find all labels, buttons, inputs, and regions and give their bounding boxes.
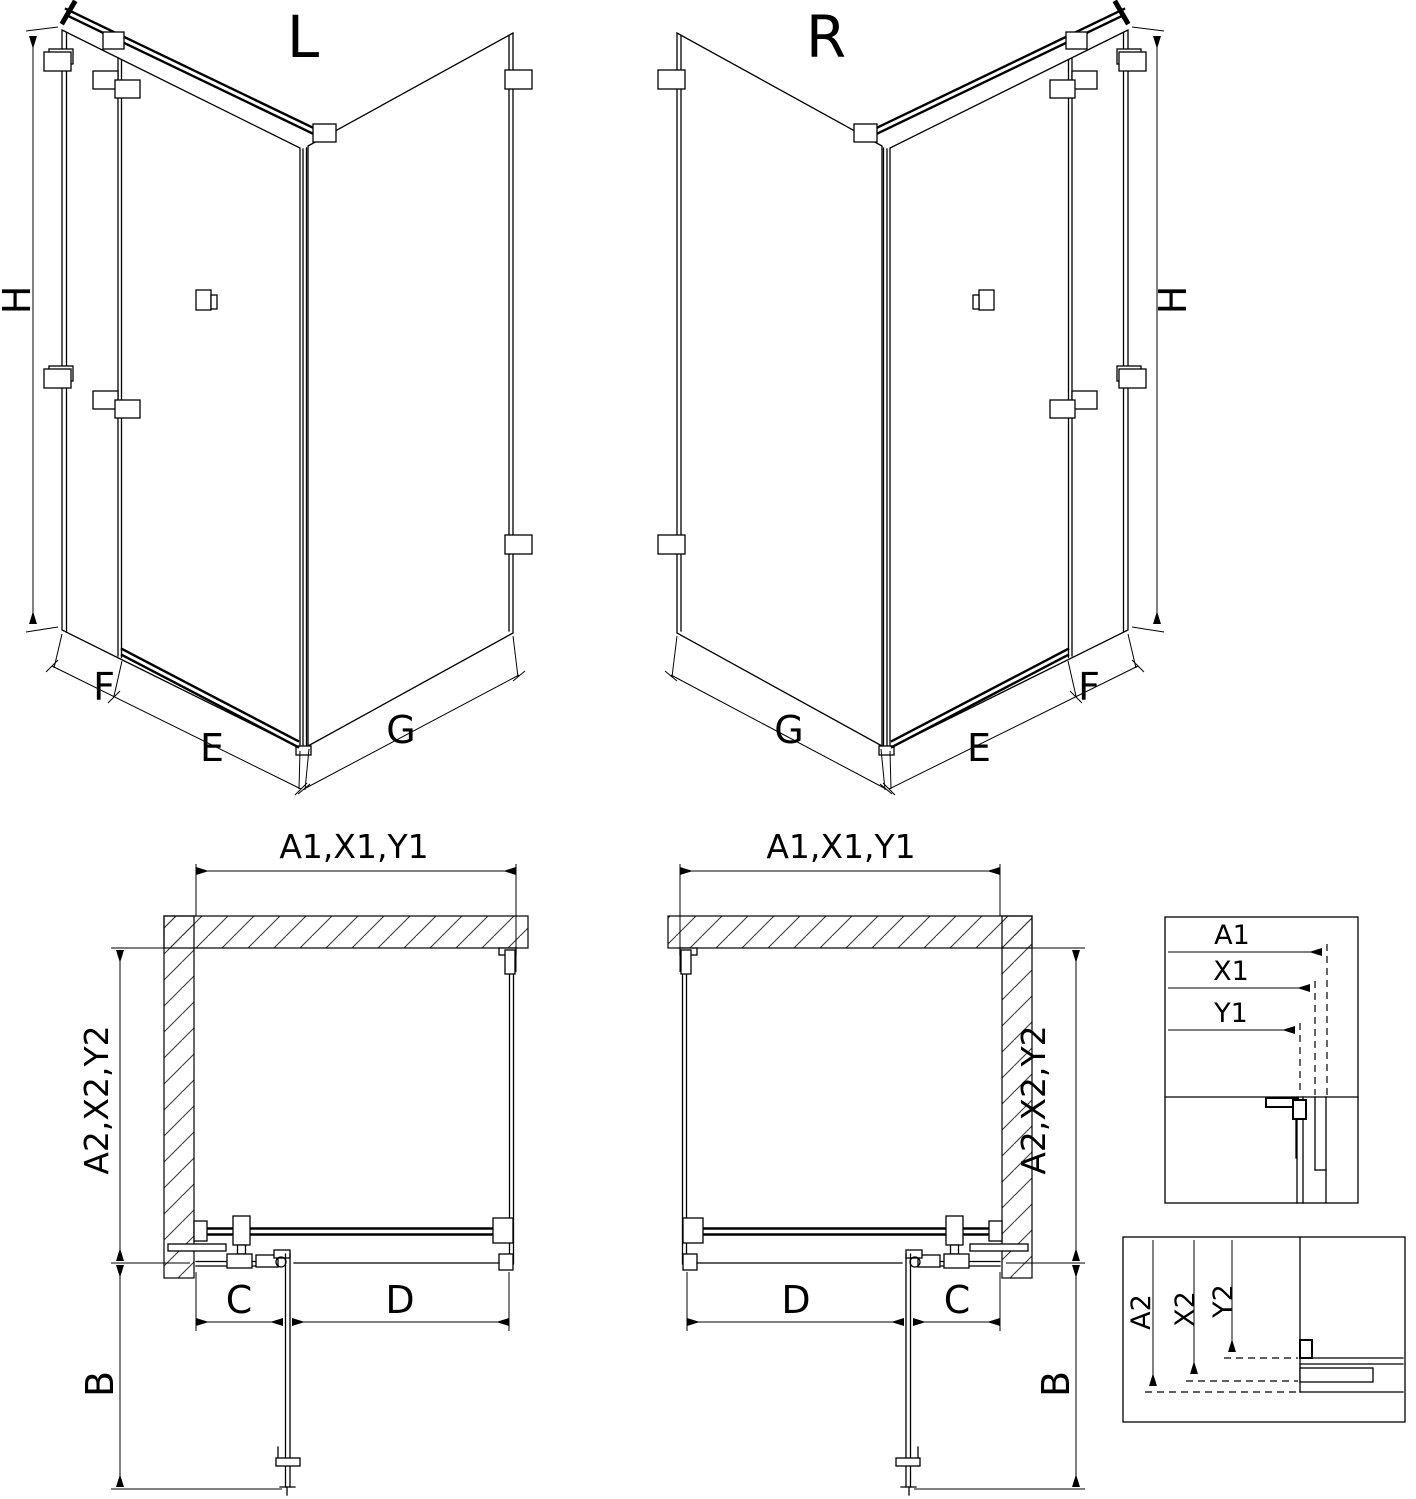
label-fixed-panel-left: F	[93, 665, 115, 709]
label-plan-width-right: A1,X1,Y1	[766, 827, 915, 866]
wall-top-left-plan	[164, 916, 528, 948]
label-height-right: H	[1151, 286, 1195, 315]
label-detail-y2: Y2	[1208, 1284, 1239, 1319]
label-height-left: H	[0, 286, 39, 315]
label-door-d-right: D	[781, 1278, 810, 1322]
label-detail-a1: A1	[1214, 920, 1250, 951]
plan-left-walls	[164, 916, 528, 1278]
label-door-d-left: D	[385, 1278, 414, 1322]
label-view-left: L	[287, 3, 319, 71]
label-door-open-b-left: B	[78, 1371, 122, 1397]
label-side-wall-right: G	[774, 708, 803, 752]
label-side-wall-left: G	[386, 708, 415, 752]
plan-right-walls	[668, 916, 1032, 1278]
label-door-open-b-right: B	[1034, 1371, 1078, 1397]
label-detail-x1: X1	[1213, 956, 1249, 987]
label-detail-a2: A2	[1126, 1294, 1157, 1330]
diagram-canvas: L R H H F E G G E F A1,X1,Y1 A1,X1,Y1 A2…	[0, 0, 1416, 1499]
label-plan-depth-right: A2,X2,Y2	[1014, 1025, 1053, 1174]
label-door-left: E	[200, 726, 224, 770]
label-plan-width-left: A1,X1,Y1	[279, 827, 428, 866]
label-panel-c-left: C	[226, 1278, 253, 1322]
detail-box-width	[1165, 917, 1358, 1203]
detail-box-depth	[1123, 1237, 1405, 1422]
label-plan-depth-left: A2,X2,Y2	[77, 1025, 116, 1174]
label-view-right: R	[806, 3, 846, 71]
label-door-right: E	[967, 726, 991, 770]
wall-side-left-plan	[164, 916, 194, 1278]
wall-top-right-plan	[668, 916, 1032, 948]
label-panel-c-right: C	[944, 1278, 971, 1322]
label-detail-y1: Y1	[1213, 998, 1248, 1029]
shower-enclosure-technical-diagram: L R H H F E G G E F A1,X1,Y1 A1,X1,Y1 A2…	[0, 0, 1416, 1499]
label-detail-x2: X2	[1170, 1291, 1201, 1327]
label-fixed-panel-right: F	[1078, 665, 1100, 709]
